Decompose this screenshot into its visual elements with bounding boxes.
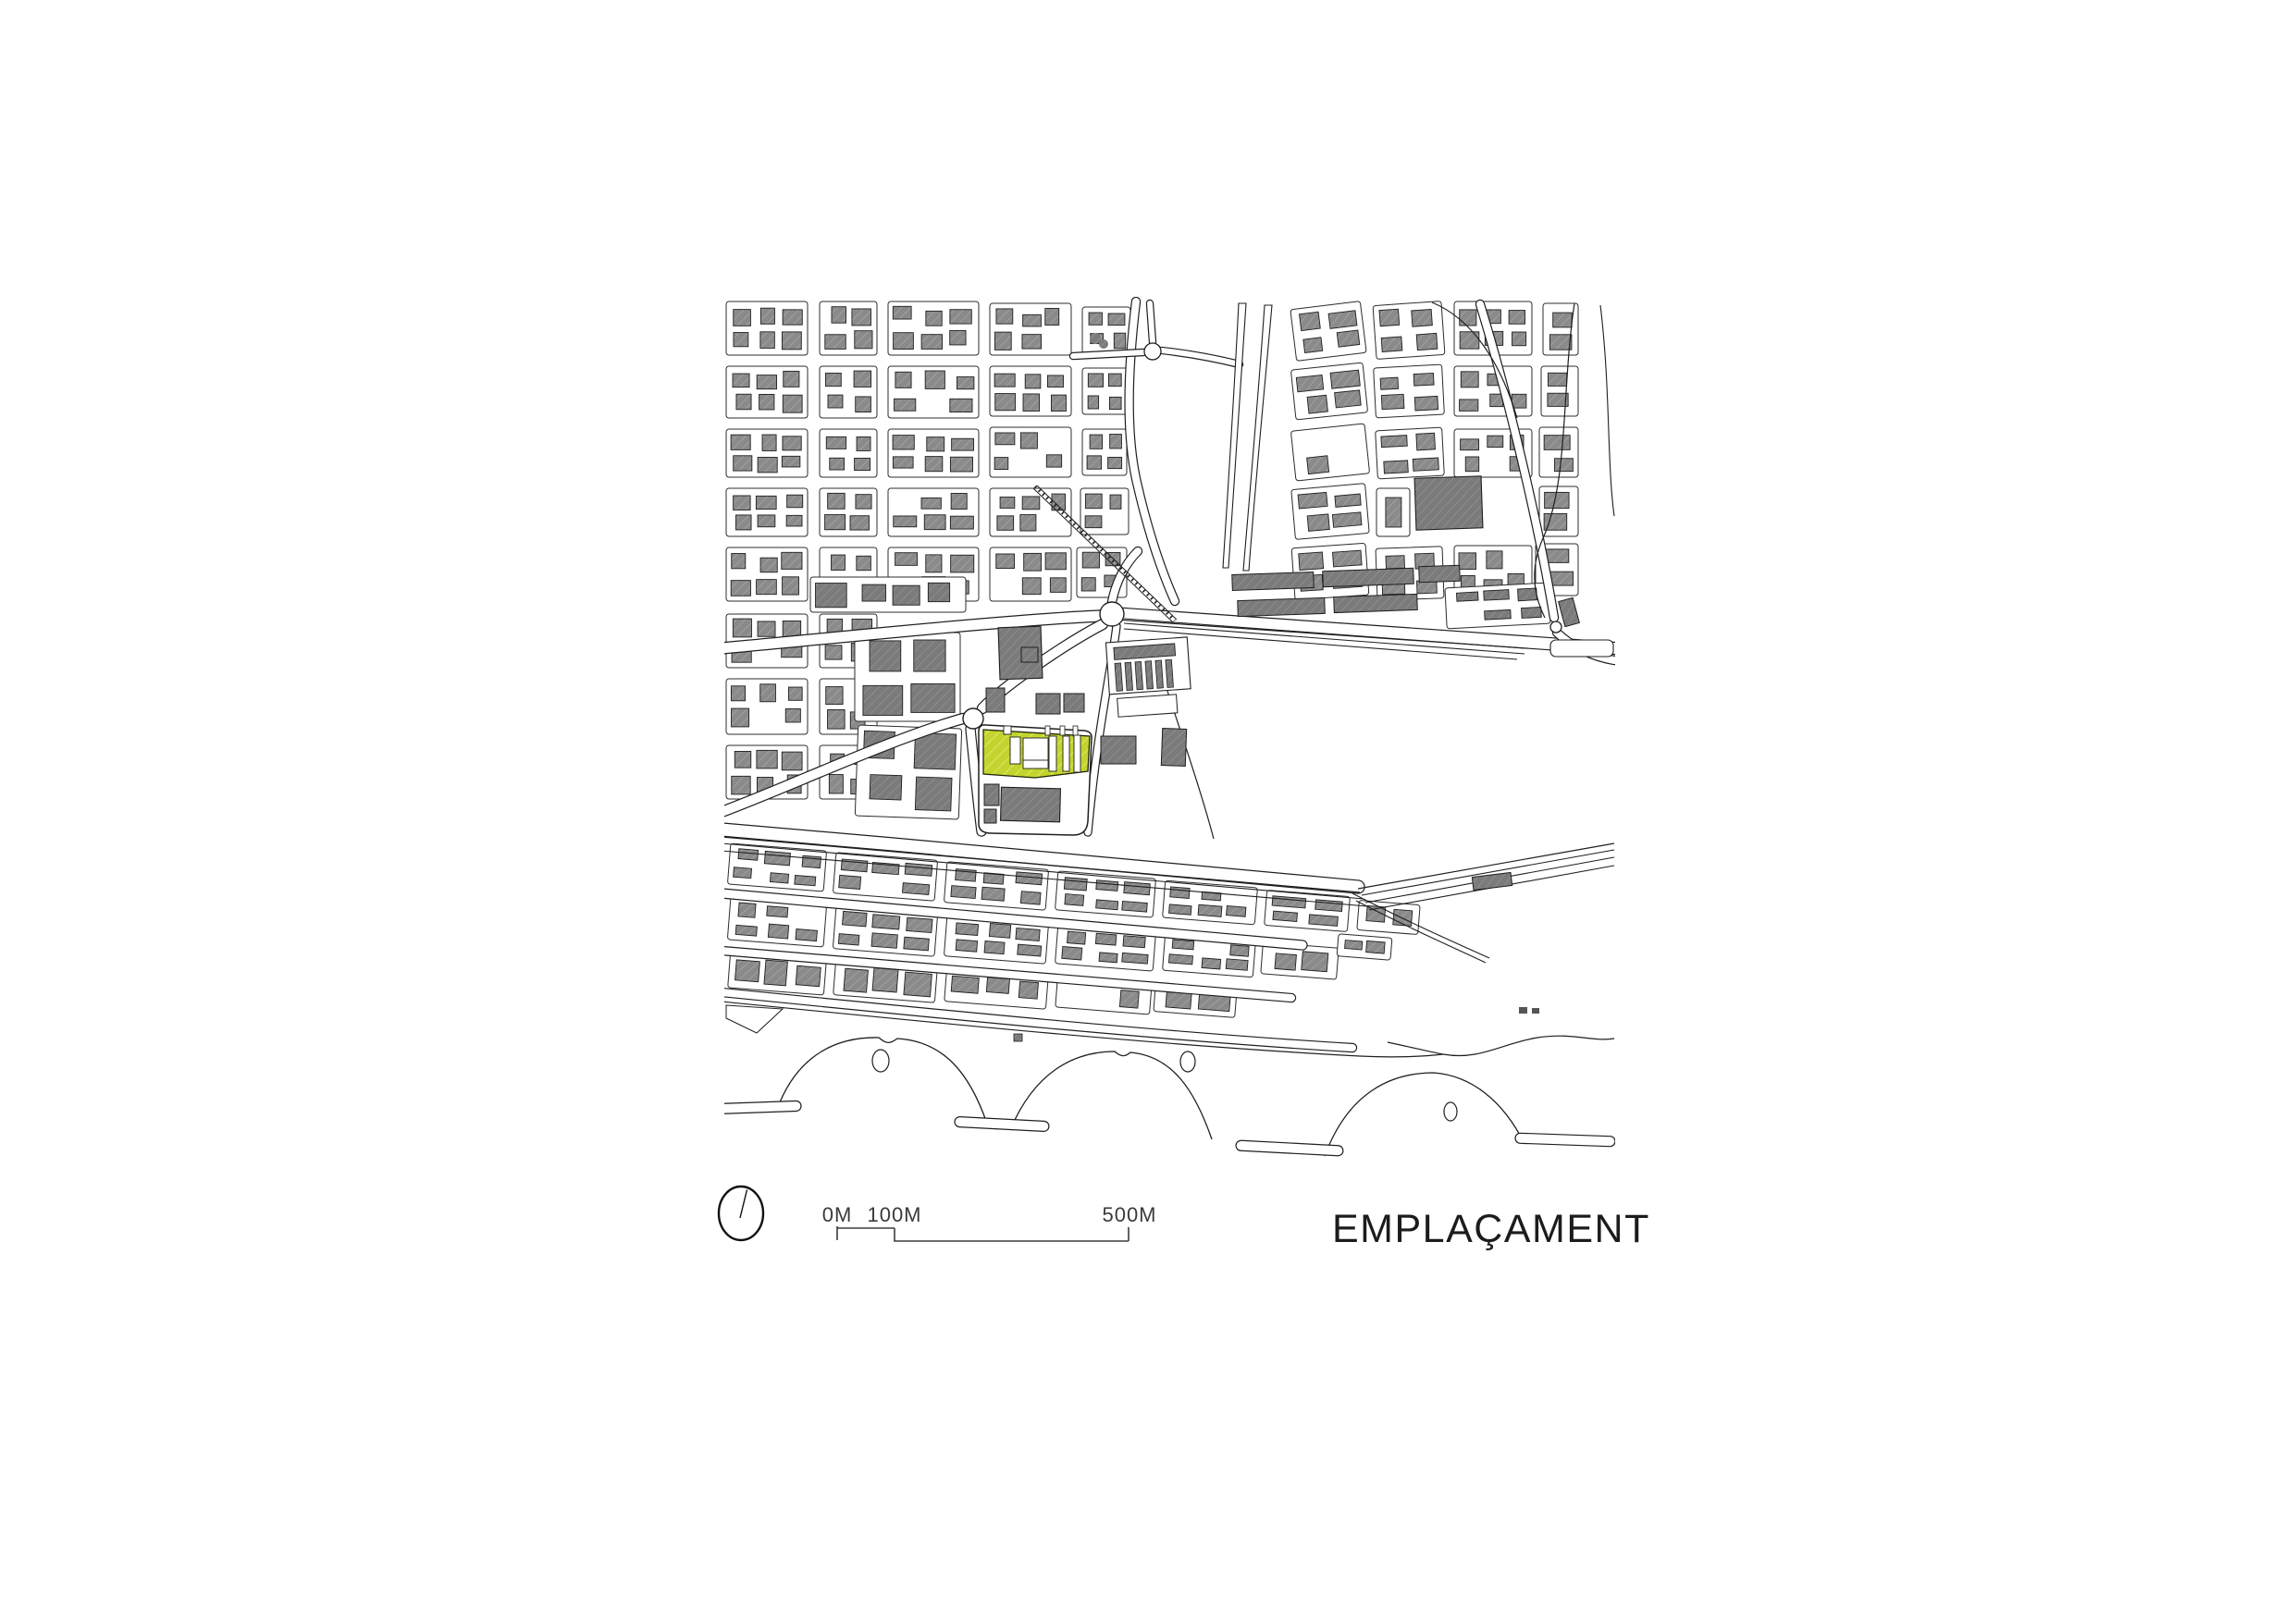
building <box>862 584 885 601</box>
building <box>1227 905 1246 916</box>
building <box>1272 896 1306 908</box>
building <box>760 332 774 349</box>
building <box>770 873 788 883</box>
building <box>782 752 802 770</box>
sand-point <box>726 1005 783 1033</box>
building <box>1461 439 1479 450</box>
building <box>733 619 751 637</box>
building <box>828 395 843 408</box>
building <box>1108 374 1121 387</box>
building <box>872 915 900 929</box>
beach-bay <box>1325 1073 1524 1156</box>
city-block <box>820 366 877 418</box>
building <box>1109 397 1121 409</box>
building <box>950 516 973 529</box>
building <box>783 310 802 325</box>
building <box>1549 572 1574 585</box>
building <box>789 687 803 700</box>
building <box>952 438 974 450</box>
building <box>1302 952 1328 972</box>
building <box>1298 492 1327 509</box>
building <box>871 933 897 949</box>
city-block <box>1454 366 1532 416</box>
city-block <box>1337 934 1392 960</box>
scale-label-100m: 100M <box>867 1203 921 1227</box>
building <box>787 495 803 508</box>
building <box>734 496 751 510</box>
building <box>735 515 751 530</box>
city-block <box>990 366 1071 416</box>
city-block <box>726 679 808 734</box>
city-block <box>1082 368 1129 414</box>
drawing-title: EMPLAÇAMENT <box>1332 1207 1650 1252</box>
building <box>1512 332 1526 346</box>
building <box>856 495 871 509</box>
building <box>855 331 872 349</box>
site-court <box>1023 738 1048 762</box>
city-block <box>1290 424 1369 481</box>
building <box>981 887 1005 901</box>
building <box>1328 311 1357 329</box>
building <box>1545 492 1569 508</box>
building <box>893 306 911 319</box>
building <box>1122 901 1147 912</box>
building <box>852 309 871 326</box>
building <box>828 493 846 509</box>
building <box>758 515 775 527</box>
roundabout <box>1144 343 1161 360</box>
building <box>1509 311 1524 325</box>
building <box>1487 436 1503 447</box>
building <box>1050 578 1066 593</box>
city-block <box>1290 301 1366 362</box>
city-block <box>1376 488 1410 536</box>
city-block <box>726 429 808 477</box>
building <box>732 708 749 727</box>
building <box>1299 552 1324 571</box>
building <box>1081 578 1095 591</box>
scale-label-0m: 0M <box>822 1203 853 1227</box>
building <box>951 886 976 899</box>
building <box>854 371 871 387</box>
building <box>1485 609 1512 620</box>
site-court <box>1049 736 1056 771</box>
building <box>734 867 752 879</box>
building <box>1168 954 1192 965</box>
building <box>832 555 846 570</box>
building <box>1108 314 1125 326</box>
building <box>782 552 802 569</box>
building <box>895 553 918 566</box>
building <box>1018 944 1042 956</box>
city-block <box>855 633 960 721</box>
building <box>828 709 846 729</box>
building <box>925 371 944 388</box>
building <box>996 554 1015 569</box>
building <box>1544 436 1570 450</box>
building <box>826 687 843 705</box>
building <box>902 883 929 895</box>
building <box>1381 436 1407 448</box>
building <box>1025 375 1041 388</box>
building <box>768 924 788 939</box>
site-court <box>1045 726 1050 735</box>
building <box>1379 309 1400 326</box>
building <box>926 311 942 326</box>
building <box>1315 900 1343 912</box>
building <box>1088 396 1098 409</box>
building <box>1024 553 1042 571</box>
building <box>843 911 868 926</box>
roundabout <box>963 708 983 729</box>
site-court <box>1023 760 1048 768</box>
beach-groin <box>712 1100 801 1113</box>
city-block <box>1539 427 1578 477</box>
building <box>951 555 974 572</box>
building <box>925 457 943 472</box>
building <box>1512 394 1526 408</box>
building <box>1386 556 1404 569</box>
building <box>762 435 776 450</box>
building <box>1416 333 1438 350</box>
city-block <box>1080 488 1129 535</box>
scale-label-500m: 500M <box>1102 1203 1156 1227</box>
building <box>1549 335 1572 350</box>
building <box>1000 497 1015 508</box>
building <box>1413 458 1438 471</box>
building <box>783 395 802 412</box>
building <box>825 515 846 530</box>
building <box>844 968 868 992</box>
building <box>1110 495 1121 509</box>
building <box>911 683 955 712</box>
site-plan-page: 0M 100M 500M EMPLAÇAMENT <box>0 0 2296 1623</box>
tree-clump <box>1099 339 1108 349</box>
building <box>1459 553 1475 570</box>
building <box>832 307 846 324</box>
building <box>1413 373 1434 386</box>
map-ui-layer <box>719 1187 1129 1241</box>
building <box>956 940 977 952</box>
building <box>1082 552 1099 568</box>
building <box>783 436 801 450</box>
city-block <box>726 366 808 418</box>
building <box>1062 947 1082 960</box>
building <box>764 851 790 865</box>
beach-pond <box>1180 1051 1195 1072</box>
building <box>1386 498 1401 527</box>
building <box>1047 375 1063 387</box>
tree-clump <box>1090 333 1101 344</box>
city-block <box>810 577 966 612</box>
building <box>1275 953 1296 970</box>
city-block <box>1082 429 1127 475</box>
building <box>759 394 774 410</box>
city-block <box>820 429 877 477</box>
site-map-canvas <box>0 0 2296 1623</box>
city-block <box>820 301 877 355</box>
building <box>951 976 979 993</box>
city-block <box>1291 484 1369 540</box>
building <box>857 556 871 570</box>
building <box>732 554 746 569</box>
building <box>757 750 777 768</box>
building <box>1087 456 1102 469</box>
building <box>995 433 1015 445</box>
building <box>839 875 861 889</box>
building <box>894 516 917 527</box>
city-block <box>726 547 808 601</box>
building <box>1124 882 1151 895</box>
building <box>1085 516 1102 528</box>
building <box>1414 396 1438 411</box>
scale-bar-graphic <box>837 1226 1129 1241</box>
building <box>1461 372 1478 387</box>
building <box>894 333 914 350</box>
city-block <box>990 488 1071 536</box>
building <box>825 646 842 659</box>
building <box>1198 904 1222 916</box>
building <box>915 777 952 811</box>
building <box>734 333 748 347</box>
building <box>1332 512 1362 527</box>
building <box>829 775 843 793</box>
building <box>957 377 973 389</box>
station-building <box>1472 872 1512 890</box>
building <box>732 776 750 794</box>
building <box>872 968 898 992</box>
building <box>1064 878 1087 891</box>
building <box>986 977 1009 994</box>
building <box>1090 435 1102 449</box>
beach-groin <box>955 1116 1049 1131</box>
building <box>927 437 944 451</box>
building <box>734 751 750 768</box>
building <box>950 399 972 412</box>
building <box>758 457 777 472</box>
building <box>1335 494 1361 507</box>
city-block <box>1290 363 1367 420</box>
empty-lot <box>1117 695 1178 717</box>
building <box>796 965 821 986</box>
building <box>989 924 1010 939</box>
building <box>1296 375 1323 391</box>
building <box>1381 337 1402 351</box>
building <box>1303 338 1323 353</box>
roundabout <box>1100 602 1124 626</box>
site-court <box>1004 726 1011 734</box>
building <box>1172 940 1193 950</box>
building <box>905 863 932 876</box>
city-block <box>726 488 808 536</box>
school-building <box>1414 476 1483 530</box>
building <box>782 332 801 350</box>
building <box>1307 514 1329 531</box>
building <box>921 498 941 509</box>
building <box>994 458 1008 470</box>
building <box>1345 941 1363 950</box>
building <box>950 457 972 472</box>
building <box>1020 515 1036 531</box>
building <box>1555 459 1574 472</box>
building <box>1465 457 1478 472</box>
building <box>767 906 788 917</box>
building <box>904 972 932 997</box>
city-block <box>990 303 1071 355</box>
building <box>1122 953 1148 964</box>
building <box>830 458 845 470</box>
building <box>1114 333 1125 349</box>
building <box>994 374 1015 387</box>
building <box>956 923 979 936</box>
building <box>1460 332 1479 349</box>
city-block <box>820 488 877 536</box>
building <box>735 925 757 936</box>
building <box>1522 607 1542 618</box>
building <box>1099 953 1117 963</box>
building <box>1020 891 1041 904</box>
city-block <box>1376 427 1445 479</box>
building <box>731 435 750 449</box>
building <box>760 684 776 702</box>
building <box>1065 894 1084 906</box>
building <box>914 640 945 671</box>
building <box>850 516 869 530</box>
beach-groin <box>1515 1133 1615 1147</box>
building <box>1108 457 1122 468</box>
building <box>1022 578 1041 595</box>
building <box>1307 456 1329 474</box>
building <box>997 516 1014 530</box>
building <box>784 371 799 387</box>
building <box>1307 395 1327 413</box>
building <box>1518 588 1537 601</box>
beach-pond <box>872 1050 889 1072</box>
building <box>735 960 760 982</box>
building <box>785 708 800 722</box>
building <box>1548 373 1566 386</box>
building <box>1335 390 1362 408</box>
building <box>904 937 929 951</box>
building <box>895 372 911 387</box>
roundabout <box>1550 621 1562 633</box>
city-block <box>1541 366 1578 416</box>
building <box>1416 433 1436 450</box>
building <box>1484 590 1510 601</box>
building <box>758 621 775 636</box>
shoreline <box>1388 1036 1614 1055</box>
building <box>796 929 817 941</box>
building <box>870 775 902 800</box>
building <box>1045 308 1059 325</box>
city-block <box>1445 583 1550 629</box>
building <box>786 515 802 526</box>
building <box>928 583 949 601</box>
building <box>1045 553 1066 570</box>
beach-pond <box>1444 1102 1457 1121</box>
building <box>1230 945 1249 956</box>
building <box>736 394 751 410</box>
building <box>1110 435 1122 449</box>
building <box>1022 497 1040 510</box>
beach-groin <box>1236 1140 1343 1156</box>
city-block <box>726 301 808 355</box>
city-block <box>990 547 1071 601</box>
building <box>757 580 777 595</box>
city-block <box>888 366 979 418</box>
city-block <box>944 862 1048 910</box>
building <box>924 515 945 530</box>
building <box>995 394 1016 411</box>
city-block <box>888 429 979 477</box>
building <box>1095 933 1116 945</box>
building <box>857 436 870 450</box>
building <box>1309 915 1339 927</box>
building <box>1022 335 1042 349</box>
building <box>921 335 942 350</box>
building <box>1020 433 1037 449</box>
building <box>733 374 749 387</box>
building <box>893 457 913 468</box>
city-block <box>888 301 979 355</box>
building <box>856 397 871 412</box>
building <box>738 903 756 917</box>
building <box>760 308 774 324</box>
building <box>1119 990 1139 1008</box>
building <box>1169 904 1191 915</box>
building <box>1202 958 1221 969</box>
building <box>1366 941 1386 953</box>
building <box>825 373 841 386</box>
building <box>951 493 967 509</box>
building <box>764 960 787 986</box>
building <box>795 875 816 885</box>
building <box>734 456 752 471</box>
city-block <box>1374 364 1445 418</box>
building <box>1330 370 1360 388</box>
building <box>1023 314 1042 326</box>
building <box>1016 872 1043 885</box>
building <box>863 685 903 715</box>
site-court <box>1060 726 1065 735</box>
building <box>1023 394 1040 412</box>
building <box>816 584 847 608</box>
city-block <box>1163 880 1258 925</box>
building <box>757 375 776 389</box>
building <box>1332 550 1362 567</box>
building <box>1067 931 1085 944</box>
building <box>783 577 799 595</box>
building <box>1016 928 1040 941</box>
building <box>1300 312 1321 330</box>
city-block <box>888 488 979 536</box>
building <box>1226 959 1248 971</box>
building <box>760 558 777 572</box>
building <box>731 686 745 701</box>
building <box>893 436 914 449</box>
building <box>1088 374 1103 387</box>
city-block <box>1539 486 1578 536</box>
building <box>1096 900 1118 910</box>
building <box>1456 592 1478 601</box>
building <box>1085 494 1102 509</box>
riera-channel <box>1243 305 1272 571</box>
site-court <box>1073 726 1078 736</box>
building <box>994 332 1011 350</box>
building <box>734 310 751 326</box>
building <box>1170 887 1190 899</box>
building <box>950 330 966 345</box>
